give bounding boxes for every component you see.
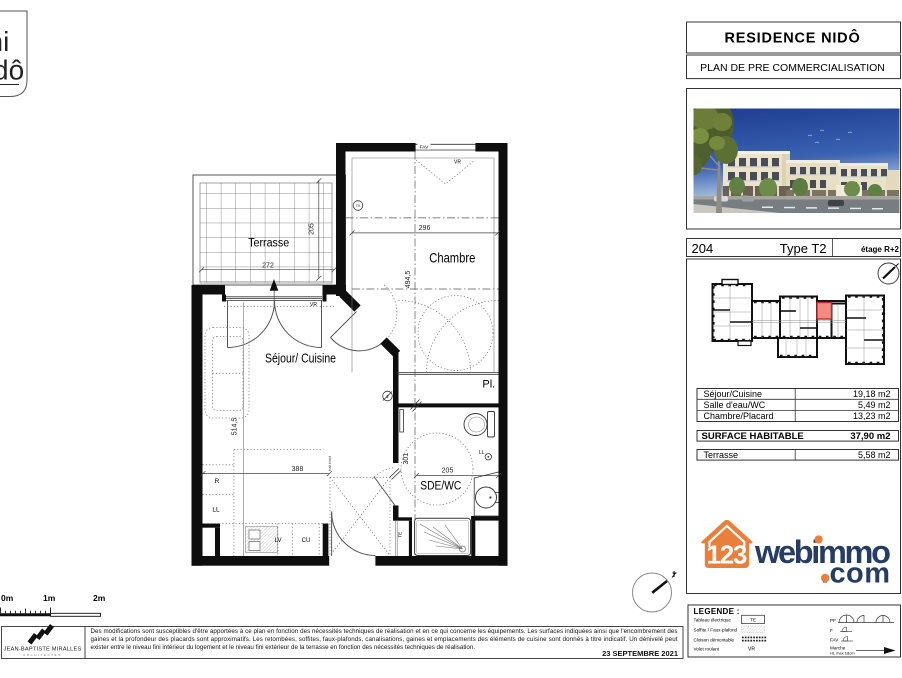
svg-text:PLAN DE PRE COMMERCIALISATION: PLAN DE PRE COMMERCIALISATION	[700, 62, 885, 74]
svg-text:F: F	[830, 628, 833, 633]
svg-text:Chambre/Placard: Chambre/Placard	[704, 411, 774, 421]
svg-text:TE: TE	[750, 617, 756, 622]
svg-text:Cloison démontable: Cloison démontable	[694, 638, 735, 643]
svg-text:37,90 m2: 37,90 m2	[850, 431, 890, 442]
svg-text:296: 296	[419, 225, 431, 232]
svg-text:Soffite / Faux-plafond: Soffite / Faux-plafond	[694, 628, 738, 633]
svg-text:dô: dô	[0, 55, 24, 86]
svg-text:SURFACE HABITABLE: SURFACE HABITABLE	[702, 431, 804, 442]
svg-text:HL max 18cm: HL max 18cm	[830, 651, 855, 656]
svg-text:Terrasse: Terrasse	[704, 450, 739, 460]
svg-text:272: 272	[262, 263, 274, 270]
svg-text:Séjour/ Cuisine: Séjour/ Cuisine	[265, 351, 336, 366]
svg-text:514,5: 514,5	[231, 418, 238, 436]
svg-text:2m: 2m	[93, 593, 106, 603]
svg-text:13,23 m2: 13,23 m2	[853, 411, 891, 421]
svg-text:5,49 m2: 5,49 m2	[858, 400, 891, 410]
svg-text:CU: CU	[302, 538, 311, 544]
svg-text:0m: 0m	[1, 593, 14, 603]
svg-text:LV: LV	[275, 538, 282, 544]
svg-text:ARCHITECTES: ARCHITECTES	[23, 653, 62, 657]
svg-text:388: 388	[292, 466, 304, 473]
svg-text:gaines et la profondeur des pl: gaines et la profondeur des placards son…	[91, 636, 678, 643]
svg-text:Tableau électrique: Tableau électrique	[694, 618, 732, 623]
svg-text:Chambre: Chambre	[429, 250, 475, 266]
svg-text:301: 301	[403, 453, 410, 465]
svg-text:LL: LL	[212, 507, 220, 514]
svg-text:SDE/WC: SDE/WC	[420, 481, 461, 493]
svg-text:VR: VR	[454, 160, 461, 166]
svg-text:VR: VR	[310, 302, 317, 308]
svg-text:VR: VR	[748, 647, 755, 653]
svg-text:Volet roulant: Volet roulant	[694, 647, 720, 652]
svg-text:494,5: 494,5	[405, 271, 412, 289]
svg-text:RESIDENCE NIDÔ: RESIDENCE NIDÔ	[724, 29, 860, 47]
svg-text:Pl.: Pl.	[482, 379, 495, 391]
svg-text:Type T2: Type T2	[780, 241, 827, 256]
svg-text:TE: TE	[397, 532, 402, 538]
svg-text:23 SEPTEMBRE 2021: 23 SEPTEMBRE 2021	[602, 649, 678, 658]
svg-text:FAV: FAV	[830, 638, 839, 643]
svg-text:JEAN-BAPTISTE MIRALLES: JEAN-BAPTISTE MIRALLES	[3, 647, 81, 653]
svg-text:R: R	[215, 478, 220, 485]
svg-text:LEGENDE :: LEGENDE :	[694, 607, 740, 616]
svg-text:ni: ni	[0, 26, 9, 57]
svg-text:exister entre le niveau fini i: exister entre le niveau fini intérieur d…	[91, 644, 476, 651]
svg-text:Hall tirant: Hall tirant	[328, 456, 332, 471]
svg-text:LL: LL	[479, 450, 485, 456]
svg-text:.com: .com	[821, 558, 890, 590]
svg-text:204: 204	[692, 241, 714, 256]
svg-text:1m: 1m	[43, 593, 56, 603]
svg-text:étage R+2: étage R+2	[861, 245, 900, 254]
svg-text:205: 205	[442, 468, 454, 475]
svg-text:123: 123	[707, 540, 748, 570]
svg-text:Terrasse: Terrasse	[248, 238, 289, 250]
svg-text:Des modifications sont suscept: Des modifications sont susceptibles d'êt…	[91, 628, 678, 635]
svg-text:19,18 m2: 19,18 m2	[853, 389, 891, 399]
svg-text:PF: PF	[830, 618, 836, 623]
svg-text:Séjour/Cuisine: Séjour/Cuisine	[704, 389, 763, 399]
svg-text:Salle d'eau/WC: Salle d'eau/WC	[704, 400, 766, 410]
svg-text:5,58 m2: 5,58 m2	[858, 450, 891, 460]
svg-text:205: 205	[309, 223, 316, 235]
svg-text:FAV: FAV	[420, 145, 430, 151]
svg-text:TV: TV	[356, 204, 361, 208]
